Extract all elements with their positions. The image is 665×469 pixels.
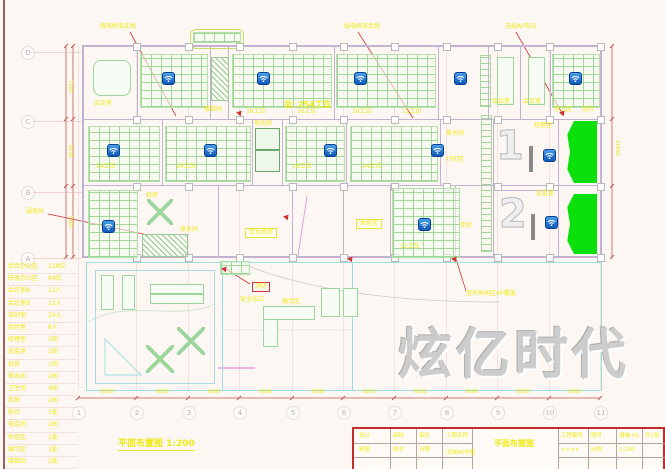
wall [520, 46, 521, 119]
section-arrow-mark [283, 213, 291, 221]
planter-table [263, 306, 315, 320]
wall [550, 46, 551, 119]
wall [438, 46, 439, 119]
legend-table: 综合办公区128位研发办公区64位会议室A12人会议室B12人培训室24人接待室… [6, 262, 78, 469]
legend-row: 研发办公区64位 [6, 274, 78, 286]
legend-value: 24人 [48, 313, 62, 319]
column-marker [236, 183, 244, 191]
annotation-label: 库房 [460, 223, 472, 229]
wifi-ap-icon [354, 72, 367, 85]
dimension-value: 6600 [67, 145, 72, 158]
column-marker [597, 254, 605, 262]
annotation-label: 经理室 [534, 123, 552, 129]
legend-row: 综合办公区128位 [6, 262, 78, 274]
legend-name: 研发办公区 [8, 276, 38, 282]
legend-name: 综合办公区 [8, 264, 38, 270]
column-marker [597, 183, 605, 191]
title-block-cell: 日期 [419, 447, 430, 453]
column-marker [133, 116, 141, 124]
annotation-label: 消防 [252, 282, 270, 292]
legend-row: 经理室2间 [6, 335, 78, 347]
grid-line-vertical [78, 45, 79, 390]
planter-strip [480, 55, 491, 107]
legend-row: 机房1间 [6, 360, 78, 372]
wifi-ap-icon [431, 144, 444, 157]
annotation-label: 茶水间 [446, 131, 464, 137]
title-block-cell: 无线AP布置 [446, 450, 475, 456]
column-marker [236, 43, 244, 51]
wall [137, 46, 138, 119]
title-block-divider [354, 443, 472, 444]
planter-table [150, 284, 204, 294]
title-block: 设计制图审核校对审定日期工程名称无线AP布置平面布置图工程编号××××图号比例弱… [352, 427, 665, 469]
highlight-panel [564, 194, 597, 254]
grid-column-bubble: 3 [182, 406, 196, 420]
grid-column-bubble: 8 [440, 406, 454, 420]
annotation-label: 电话间 [254, 121, 272, 127]
legend-value: 128位 [48, 264, 65, 270]
plaza-wall [222, 262, 223, 390]
annotation-label: 机房 [146, 193, 158, 199]
annotation-label: 展示区 [282, 299, 300, 305]
desk-cluster [336, 54, 436, 108]
title-block-cell: 共1张 [645, 433, 660, 439]
desk-cluster [193, 32, 241, 43]
grid-column-bubble: 7 [388, 406, 402, 420]
legend-row: 卫生间4间 [6, 384, 78, 396]
wifi-ap-icon [569, 72, 582, 85]
legend-value: 1处 [48, 410, 58, 416]
dimension-value: 6000 [208, 390, 221, 395]
dimension-value: 6000 [466, 390, 479, 395]
door-bar [531, 214, 535, 240]
grid-line-horizontal [30, 52, 82, 53]
planter-table [150, 294, 204, 304]
column-marker [597, 116, 605, 124]
title-block-cell: 审核 [393, 433, 404, 439]
legend-name: 卫生间 [8, 386, 26, 392]
dimension-value: 6000 [312, 390, 325, 395]
legend-value: 4间 [48, 386, 58, 392]
legend-name: 前台 [8, 410, 20, 416]
legend-row: 总监室2间 [6, 347, 78, 359]
dimension-total: 21000 [614, 140, 619, 156]
legend-value: 12人 [48, 301, 62, 307]
column-marker [443, 43, 451, 51]
annotation-label: 16工位 [246, 109, 266, 115]
watermark-text: 炫亿时代 [398, 328, 630, 382]
column-marker [391, 116, 399, 124]
phone-table [255, 128, 280, 150]
wifi-ap-icon [102, 220, 115, 233]
planter-table [263, 319, 278, 347]
legend-row: 接待室8人 [6, 323, 78, 335]
grid-row-bubble: C [21, 115, 35, 129]
grid-column-bubble: 6 [337, 406, 351, 420]
column-marker [185, 183, 193, 191]
annotation-label: 弱电井 [26, 209, 44, 215]
annotation-label: 16工位 [297, 109, 317, 115]
legend-row: 会议室B12人 [6, 299, 78, 311]
title-block-divider [390, 429, 391, 469]
legend-name: 库房 [8, 398, 20, 404]
plaza-wall [86, 262, 602, 263]
legend-value: 64位 [48, 276, 62, 282]
column-marker [546, 254, 554, 262]
annotation-label: 24工位 [96, 164, 116, 170]
dimension-value: 6000 [260, 390, 273, 395]
column-marker [494, 254, 502, 262]
legend-row: 电话间2间 [6, 420, 78, 432]
plan-title: 平面布置图 1:200 [118, 436, 195, 451]
legend-value: 2间 [48, 349, 58, 355]
wifi-ap-icon [204, 144, 217, 157]
phone-table [255, 150, 280, 172]
wall [390, 186, 391, 258]
planter-table [101, 275, 114, 310]
legend-value: 2间 [48, 337, 58, 343]
plaza-wall [86, 262, 87, 390]
wifi-ap-icon [418, 218, 431, 231]
legend-value: 2间 [48, 398, 58, 404]
grid-row-bubble: D [21, 46, 35, 60]
grid-column-bubble: 5 [286, 406, 300, 420]
stair-hatch [142, 234, 188, 257]
legend-value: 1间 [48, 362, 58, 368]
annotation-label: 办公区 [554, 107, 572, 113]
title-block-cell: 平面布置图 [494, 440, 534, 449]
planter-table [122, 275, 135, 310]
title-block-cell: 审定 [419, 433, 430, 439]
title-block-divider [558, 443, 665, 444]
title-block-cell: 工程名称 [446, 433, 468, 439]
annotation-label: 无线AP布点 [505, 24, 537, 30]
legend-name: 总监室 [8, 349, 26, 355]
wall [346, 119, 347, 186]
annotation-label: 打印区 [446, 157, 464, 163]
column-marker [133, 43, 141, 51]
pin-table [147, 199, 173, 225]
title-block-cell: 比例 [591, 447, 602, 453]
title-block-cell: 工程编号 [561, 433, 583, 439]
column-marker [340, 43, 348, 51]
annotation-label: 室外休闲区AP覆盖 [466, 291, 516, 297]
cad-floorplan-canvas: 1260006000600060006000600060006000600060… [0, 0, 665, 469]
wifi-ap-icon [324, 144, 337, 157]
column-marker [289, 183, 297, 191]
column-marker [340, 183, 348, 191]
planter-table [321, 288, 340, 317]
wifi-ap-icon [257, 72, 270, 85]
planter-strip [481, 115, 492, 252]
wifi-ap-icon [162, 72, 175, 85]
legend-value: 1处 [48, 435, 58, 441]
annotation-label: 16工位 [352, 109, 372, 115]
legend-value: 2处 [48, 459, 58, 465]
wall [82, 45, 84, 258]
legend-name: 培训室 [8, 313, 26, 319]
dimension-value: 7300 [67, 215, 72, 228]
wifi-ap-icon [107, 144, 120, 157]
wall [162, 119, 163, 186]
wall [334, 46, 335, 119]
column-marker [340, 116, 348, 124]
legend-name: 楼梯间 [8, 459, 26, 465]
annotation-label: 20工位 [176, 164, 196, 170]
stair-hatch [211, 57, 229, 101]
dimension-value: 6000 [363, 390, 376, 395]
grid-line-horizontal [30, 192, 82, 193]
legend-name: 电话间 [8, 422, 26, 428]
legend-value: 2间 [48, 374, 58, 380]
desk-cluster [88, 126, 160, 182]
plaza-wall [352, 262, 353, 390]
column-marker [289, 254, 297, 262]
title-block-cell: 图号 [591, 433, 602, 439]
column-marker [185, 116, 193, 124]
title-block-divider [616, 429, 617, 469]
wall [600, 45, 602, 258]
legend-name: 会议室A [8, 288, 30, 294]
grid-column-bubble: 4 [233, 406, 247, 420]
wifi-ap-icon [545, 216, 558, 229]
grid-line-horizontal [30, 258, 82, 259]
grid-line-horizontal [30, 121, 82, 122]
title-block-cell: 制图 [359, 447, 370, 453]
annotation-label: 24工位 [362, 164, 382, 170]
annotation-label: 茶水间 [180, 227, 198, 233]
round-table [93, 60, 131, 96]
title-block-divider [588, 429, 589, 469]
column-marker [546, 43, 554, 51]
wifi-ap-icon [543, 149, 556, 162]
column-marker [494, 43, 502, 51]
title-block-cell: 弱施-01 [619, 433, 639, 439]
legend-value: 12人 [48, 288, 62, 294]
wifi-ap-icon [454, 72, 467, 85]
wall [292, 186, 293, 258]
legend-value: 2间 [48, 422, 58, 428]
title-block-cell: 校对 [393, 447, 404, 453]
annotation-label: 12工位 [400, 244, 420, 250]
annotation-label: 弱电桥架走线 [344, 24, 380, 30]
column-marker [289, 116, 297, 124]
legend-value: 8人 [48, 325, 58, 331]
grid-column-bubble: 11 [594, 406, 608, 420]
planter-table [343, 288, 358, 317]
annotation-label: 楼梯间 [204, 107, 222, 113]
pin-table [177, 327, 205, 355]
legend-name: 经理室 [8, 337, 26, 343]
title-block-divider [416, 429, 417, 469]
legend-row: 休息区1处 [6, 433, 78, 445]
room-number: 2 [499, 194, 527, 234]
dimension-value: 6000 [569, 390, 582, 395]
wall [218, 186, 219, 258]
title-block-divider [558, 429, 559, 469]
title-block-divider [642, 429, 643, 469]
annotation-label: 会议室 [492, 99, 510, 105]
dimension-value: 7200 [67, 80, 72, 93]
pin-table [146, 345, 174, 373]
legend-name: 休息区 [8, 435, 26, 441]
highlight-panel [564, 121, 597, 183]
legend-row: 会议室A12人 [6, 286, 78, 298]
annotation-label: 会议室 [94, 101, 112, 107]
title-block-divider [442, 429, 443, 469]
title-block-cell: ×××× [561, 447, 579, 453]
column-marker [185, 43, 193, 51]
legend-row: 前台1处 [6, 408, 78, 420]
column-marker [597, 43, 605, 51]
legend-row: 楼梯间2处 [6, 457, 78, 469]
legend-row: 培训室24人 [6, 311, 78, 323]
column-marker [494, 183, 502, 191]
legend-row: 展示区1处 [6, 445, 78, 457]
title-block-divider [354, 457, 472, 458]
legend-name: 机房 [8, 362, 20, 368]
floorplan-layers: 1260006000600060006000600060006000600060… [0, 0, 665, 469]
title-block-cell: 设计 [359, 433, 370, 439]
desk-cluster [350, 126, 438, 182]
annotation-label: 总监室 [536, 191, 554, 197]
legend-name: 接待室 [8, 325, 26, 331]
dimension-value: 6000 [156, 390, 169, 395]
dimension-value: 6000 [517, 390, 530, 395]
column-marker [236, 116, 244, 124]
title-block-divider [558, 457, 665, 458]
annotation-label: 强电桥架走线 [100, 24, 136, 30]
wall [343, 186, 344, 258]
door-bar [529, 146, 533, 172]
wall [282, 119, 283, 186]
legend-row: 库房2间 [6, 396, 78, 408]
dimension-value: 6000 [414, 390, 427, 395]
annotation-label: 会议室 [523, 99, 541, 105]
legend-row: 茶水间2间 [6, 372, 78, 384]
wall [558, 119, 559, 258]
annotation-label: 饮水机房 [245, 228, 277, 238]
grid-column-bubble: 10 [543, 406, 557, 420]
wall [252, 119, 253, 186]
column-marker [391, 43, 399, 51]
legend-name: 茶水间 [8, 374, 26, 380]
annotation-label: 安全出口 [240, 297, 264, 303]
grid-row-bubble: B [21, 186, 35, 200]
title-block-divider [472, 429, 473, 469]
column-marker [443, 116, 451, 124]
legend-name: 展示区 [8, 447, 26, 453]
annotation-label: 休息区 [356, 219, 382, 229]
annotation-label: 12工位 [402, 109, 422, 115]
room-number: 1 [496, 126, 524, 166]
grid-column-bubble: 2 [130, 406, 144, 420]
legend-value: 1处 [48, 447, 58, 453]
title-block-cell: 1:200 [619, 447, 635, 453]
dimension-value: 6000 [101, 390, 114, 395]
grid-column-bubble: 9 [491, 406, 505, 420]
column-marker [289, 43, 297, 51]
annotation-label: 前台 [582, 107, 594, 113]
annotation-label: 16工位 [292, 164, 312, 170]
legend-name: 会议室B [8, 301, 30, 307]
